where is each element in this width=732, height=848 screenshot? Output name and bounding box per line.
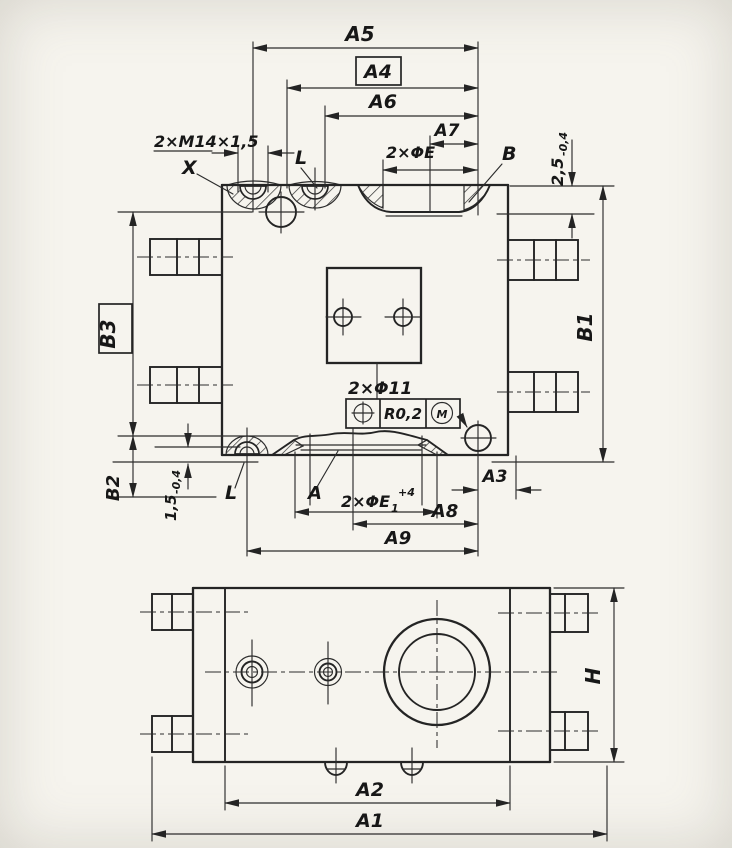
position-tolerance-icon — [352, 402, 374, 424]
fcf-modifier-letter: M — [437, 408, 448, 421]
right-lug-top — [497, 240, 590, 280]
dim-label-a1: A1 — [354, 810, 384, 832]
bottom-view: H A2 A1 — [140, 588, 624, 841]
hole-callout-phi11: 2×Φ11 — [348, 379, 412, 399]
depth-bottom-tolerance: -0,4 — [170, 470, 183, 494]
dim-label-a4: A4 — [362, 61, 392, 83]
threaded-boss-2 — [315, 642, 342, 704]
left-lug-top — [137, 239, 233, 275]
bv-left-lug-bottom — [140, 716, 250, 752]
dim-label-a6: A6 — [367, 91, 397, 113]
maximum-material-condition-icon: M — [432, 403, 453, 424]
feature-control-frame: R0,2 M 2×Φ11 — [346, 379, 467, 428]
dim-b1: B1 — [492, 186, 614, 462]
section-label-x: X — [181, 157, 198, 179]
bv-left-lug-top — [140, 594, 250, 630]
hole-callout-bottom-sub: 1 — [391, 502, 399, 515]
hole-callout-top-group: 2×ΦE B — [383, 143, 516, 202]
dim-label-b1: B1 — [573, 312, 597, 341]
depth-top-value: 2,5 — [548, 158, 567, 186]
threaded-boss-1 — [236, 640, 268, 706]
bottom-edge-bosses — [325, 748, 423, 783]
section-labels-bottom: L A — [225, 451, 338, 504]
depth-bottom-value: 1,5 — [162, 494, 180, 521]
dim-label-a7: A7 — [433, 121, 460, 141]
depth-top-tolerance: -0,4 — [557, 132, 570, 156]
dim-label-a5: A5 — [343, 22, 374, 46]
label-a: A — [306, 483, 322, 504]
dim-label-a8: A8 — [430, 501, 458, 522]
dim-label-h: H — [581, 667, 605, 684]
large-bore — [384, 600, 490, 748]
main-view: R0,2 M 2×Φ11 A5 A4 A6 — [96, 22, 614, 556]
drawing-sheet: R0,2 M 2×Φ11 A5 A4 A6 — [0, 0, 732, 848]
right-lug-bottom — [497, 372, 590, 412]
hole-callout-bottom-sup: +4 — [398, 486, 415, 499]
dim-a7: A7 — [430, 121, 478, 144]
dim-a9: A9 — [247, 528, 478, 551]
dim-label-b2: B2 — [103, 475, 124, 501]
section-label-l-top: L — [295, 147, 307, 169]
dim-label-a3: A3 — [481, 467, 508, 487]
thread-callout: 2×M14×1,5 — [154, 132, 258, 151]
locating-hole — [461, 421, 496, 556]
engineering-drawing: R0,2 M 2×Φ11 A5 A4 A6 — [0, 0, 732, 848]
dim-label-b3: B3 — [96, 319, 120, 348]
section-label-l-bottom: L — [225, 482, 237, 504]
left-lug-bottom — [137, 367, 233, 403]
fcf-tolerance-value: R0,2 — [384, 405, 422, 423]
dim-label-a2: A2 — [354, 779, 384, 801]
label-b: B — [502, 143, 516, 165]
hole-callout-bottom-base: 2×ΦE — [341, 492, 390, 511]
dim-label-a9: A9 — [383, 528, 411, 549]
main-body-outline — [222, 185, 508, 455]
dim-a5: A5 — [253, 22, 478, 48]
bottom-body-outline — [193, 588, 550, 762]
dim-a2: A2 — [225, 766, 510, 810]
hole-callout-top: 2×ΦE — [386, 143, 435, 162]
dim-a8: A8 — [353, 428, 478, 530]
